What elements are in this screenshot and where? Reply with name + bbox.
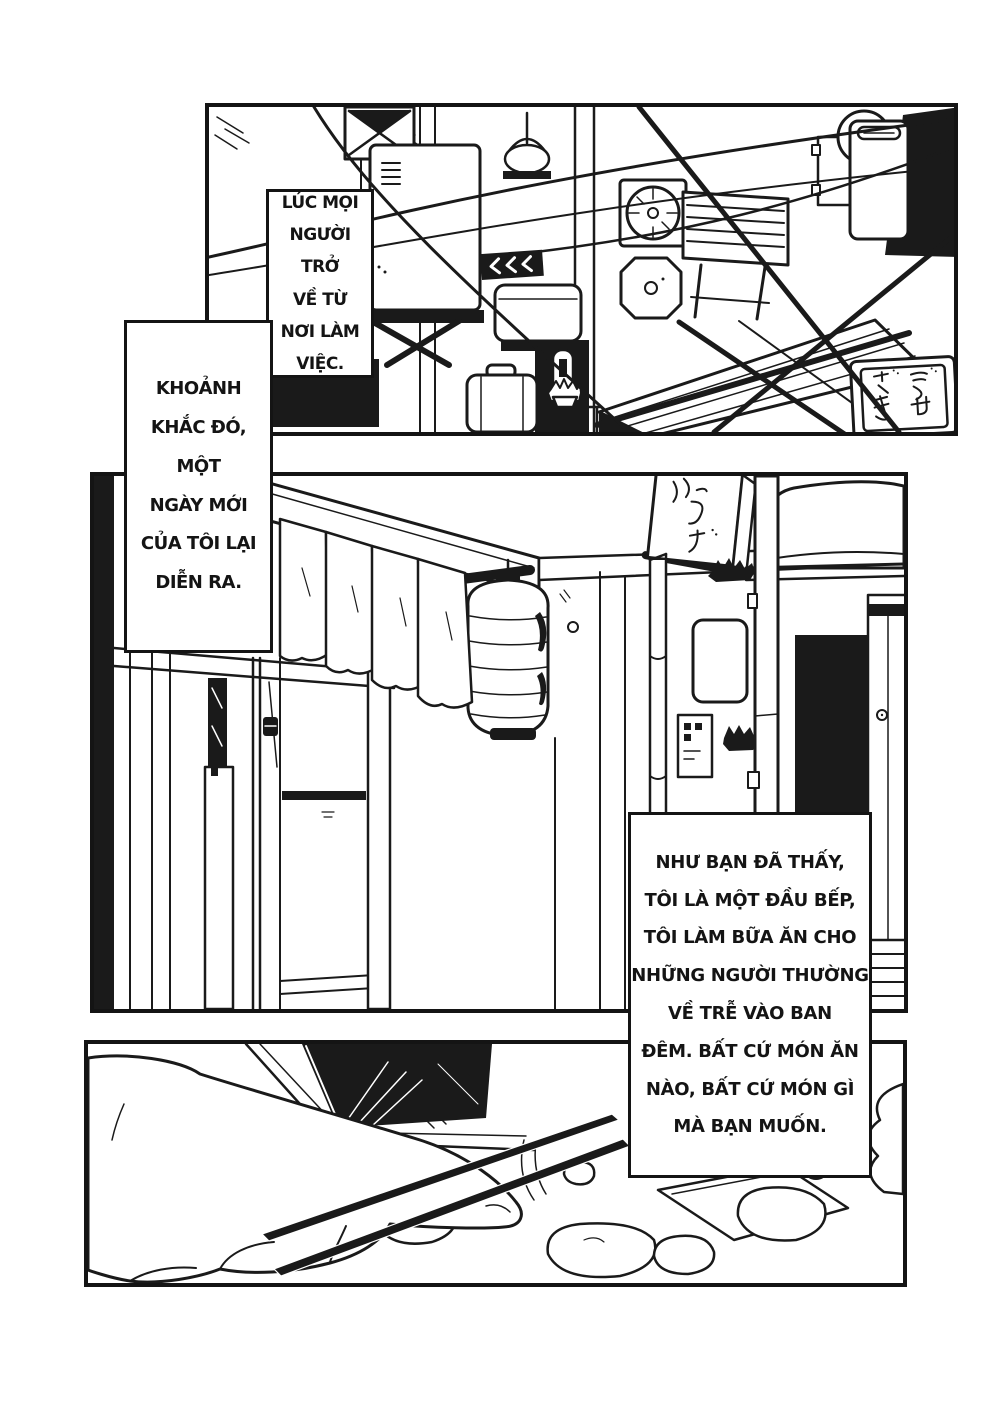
manga-page: LÚC MỌI NGƯỜI TRỞ VỀ TỪ NƠI LÀM VIỆC. KH…	[0, 0, 1000, 1402]
round-dish	[868, 1084, 903, 1194]
kettle	[503, 113, 551, 179]
cooler-box	[693, 620, 747, 702]
caption-box-1: LÚC MỌI NGƯỜI TRỞ VỀ TỪ NƠI LÀM VIỆC.	[266, 189, 374, 378]
doorway	[280, 656, 390, 1009]
meter-box	[678, 715, 712, 777]
octagon-vent	[621, 258, 681, 318]
caption-box-3: NHƯ BẠN ĐÃ THẤY, TÔI LÀ MỘT ĐẦU BẾP, TÔI…	[628, 812, 872, 1178]
caption-2-text: KHOẢNH KHẮC ĐÓ, MỘT NGÀY MỚI CỦA TÔI LẠI…	[127, 370, 270, 602]
caption-1-text: LÚC MỌI NGƯỜI TRỞ VỀ TỪ NƠI LÀM VIỆC.	[269, 187, 371, 381]
left-dark-band	[94, 476, 114, 1009]
back-door	[555, 572, 625, 1009]
dark-plank	[208, 678, 227, 767]
exhaust-fan	[620, 180, 686, 246]
pillar	[205, 767, 233, 1009]
suitcase	[467, 365, 537, 432]
paper-lantern	[468, 560, 548, 740]
caption-box-2: KHOẢNH KHẮC ĐÓ, MỘT NGÀY MỚI CỦA TÔI LẠI…	[124, 320, 273, 653]
slatted-shutter	[683, 192, 788, 319]
wall-heater	[370, 145, 480, 310]
caption-3-text: NHƯ BẠN ĐÃ THẤY, TÔI LÀ MỘT ĐẦU BẾP, TÔI…	[631, 844, 868, 1146]
storefront-sign	[645, 476, 759, 574]
